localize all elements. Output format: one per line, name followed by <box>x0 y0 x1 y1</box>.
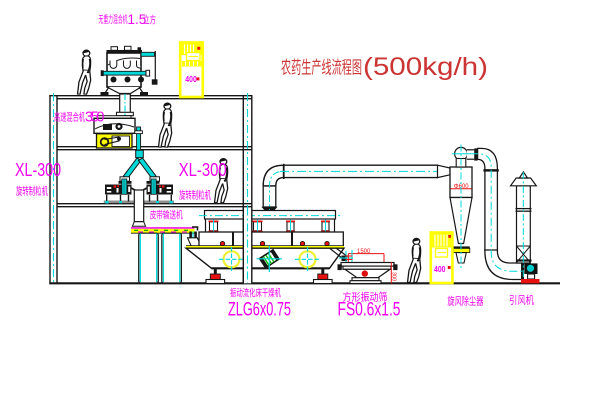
svg-text:400: 400 <box>185 74 197 84</box>
svg-text:300: 300 <box>391 272 397 281</box>
svg-text:ZLG6x0.75: ZLG6x0.75 <box>228 300 291 321</box>
svg-text:FS0.6x1.5: FS0.6x1.5 <box>338 300 401 321</box>
svg-text:立方: 立方 <box>143 14 156 27</box>
svg-text:(500kg/h): (500kg/h) <box>363 53 488 81</box>
svg-text:1500: 1500 <box>357 249 371 255</box>
svg-text:旋转制粒机: 旋转制粒机 <box>179 189 211 202</box>
svg-text:XL-300: XL-300 <box>179 160 227 180</box>
svg-text:400: 400 <box>434 264 446 274</box>
svg-text:无重力混合机: 无重力混合机 <box>99 13 128 26</box>
svg-text:旋风除尘器: 旋风除尘器 <box>447 295 483 308</box>
svg-text:振动流化床干燥机: 振动流化床干燥机 <box>230 287 281 300</box>
svg-text:XL-300: XL-300 <box>15 160 61 180</box>
svg-text:农药生产线流程图: 农药生产线流程图 <box>281 58 362 78</box>
svg-text:皮带输送机: 皮带输送机 <box>150 209 183 222</box>
svg-text:高速混合机: 高速混合机 <box>54 111 85 124</box>
svg-text:旋转制粒机: 旋转制粒机 <box>16 185 48 198</box>
svg-text:引风机: 引风机 <box>509 294 534 307</box>
svg-text:350: 350 <box>85 110 105 126</box>
